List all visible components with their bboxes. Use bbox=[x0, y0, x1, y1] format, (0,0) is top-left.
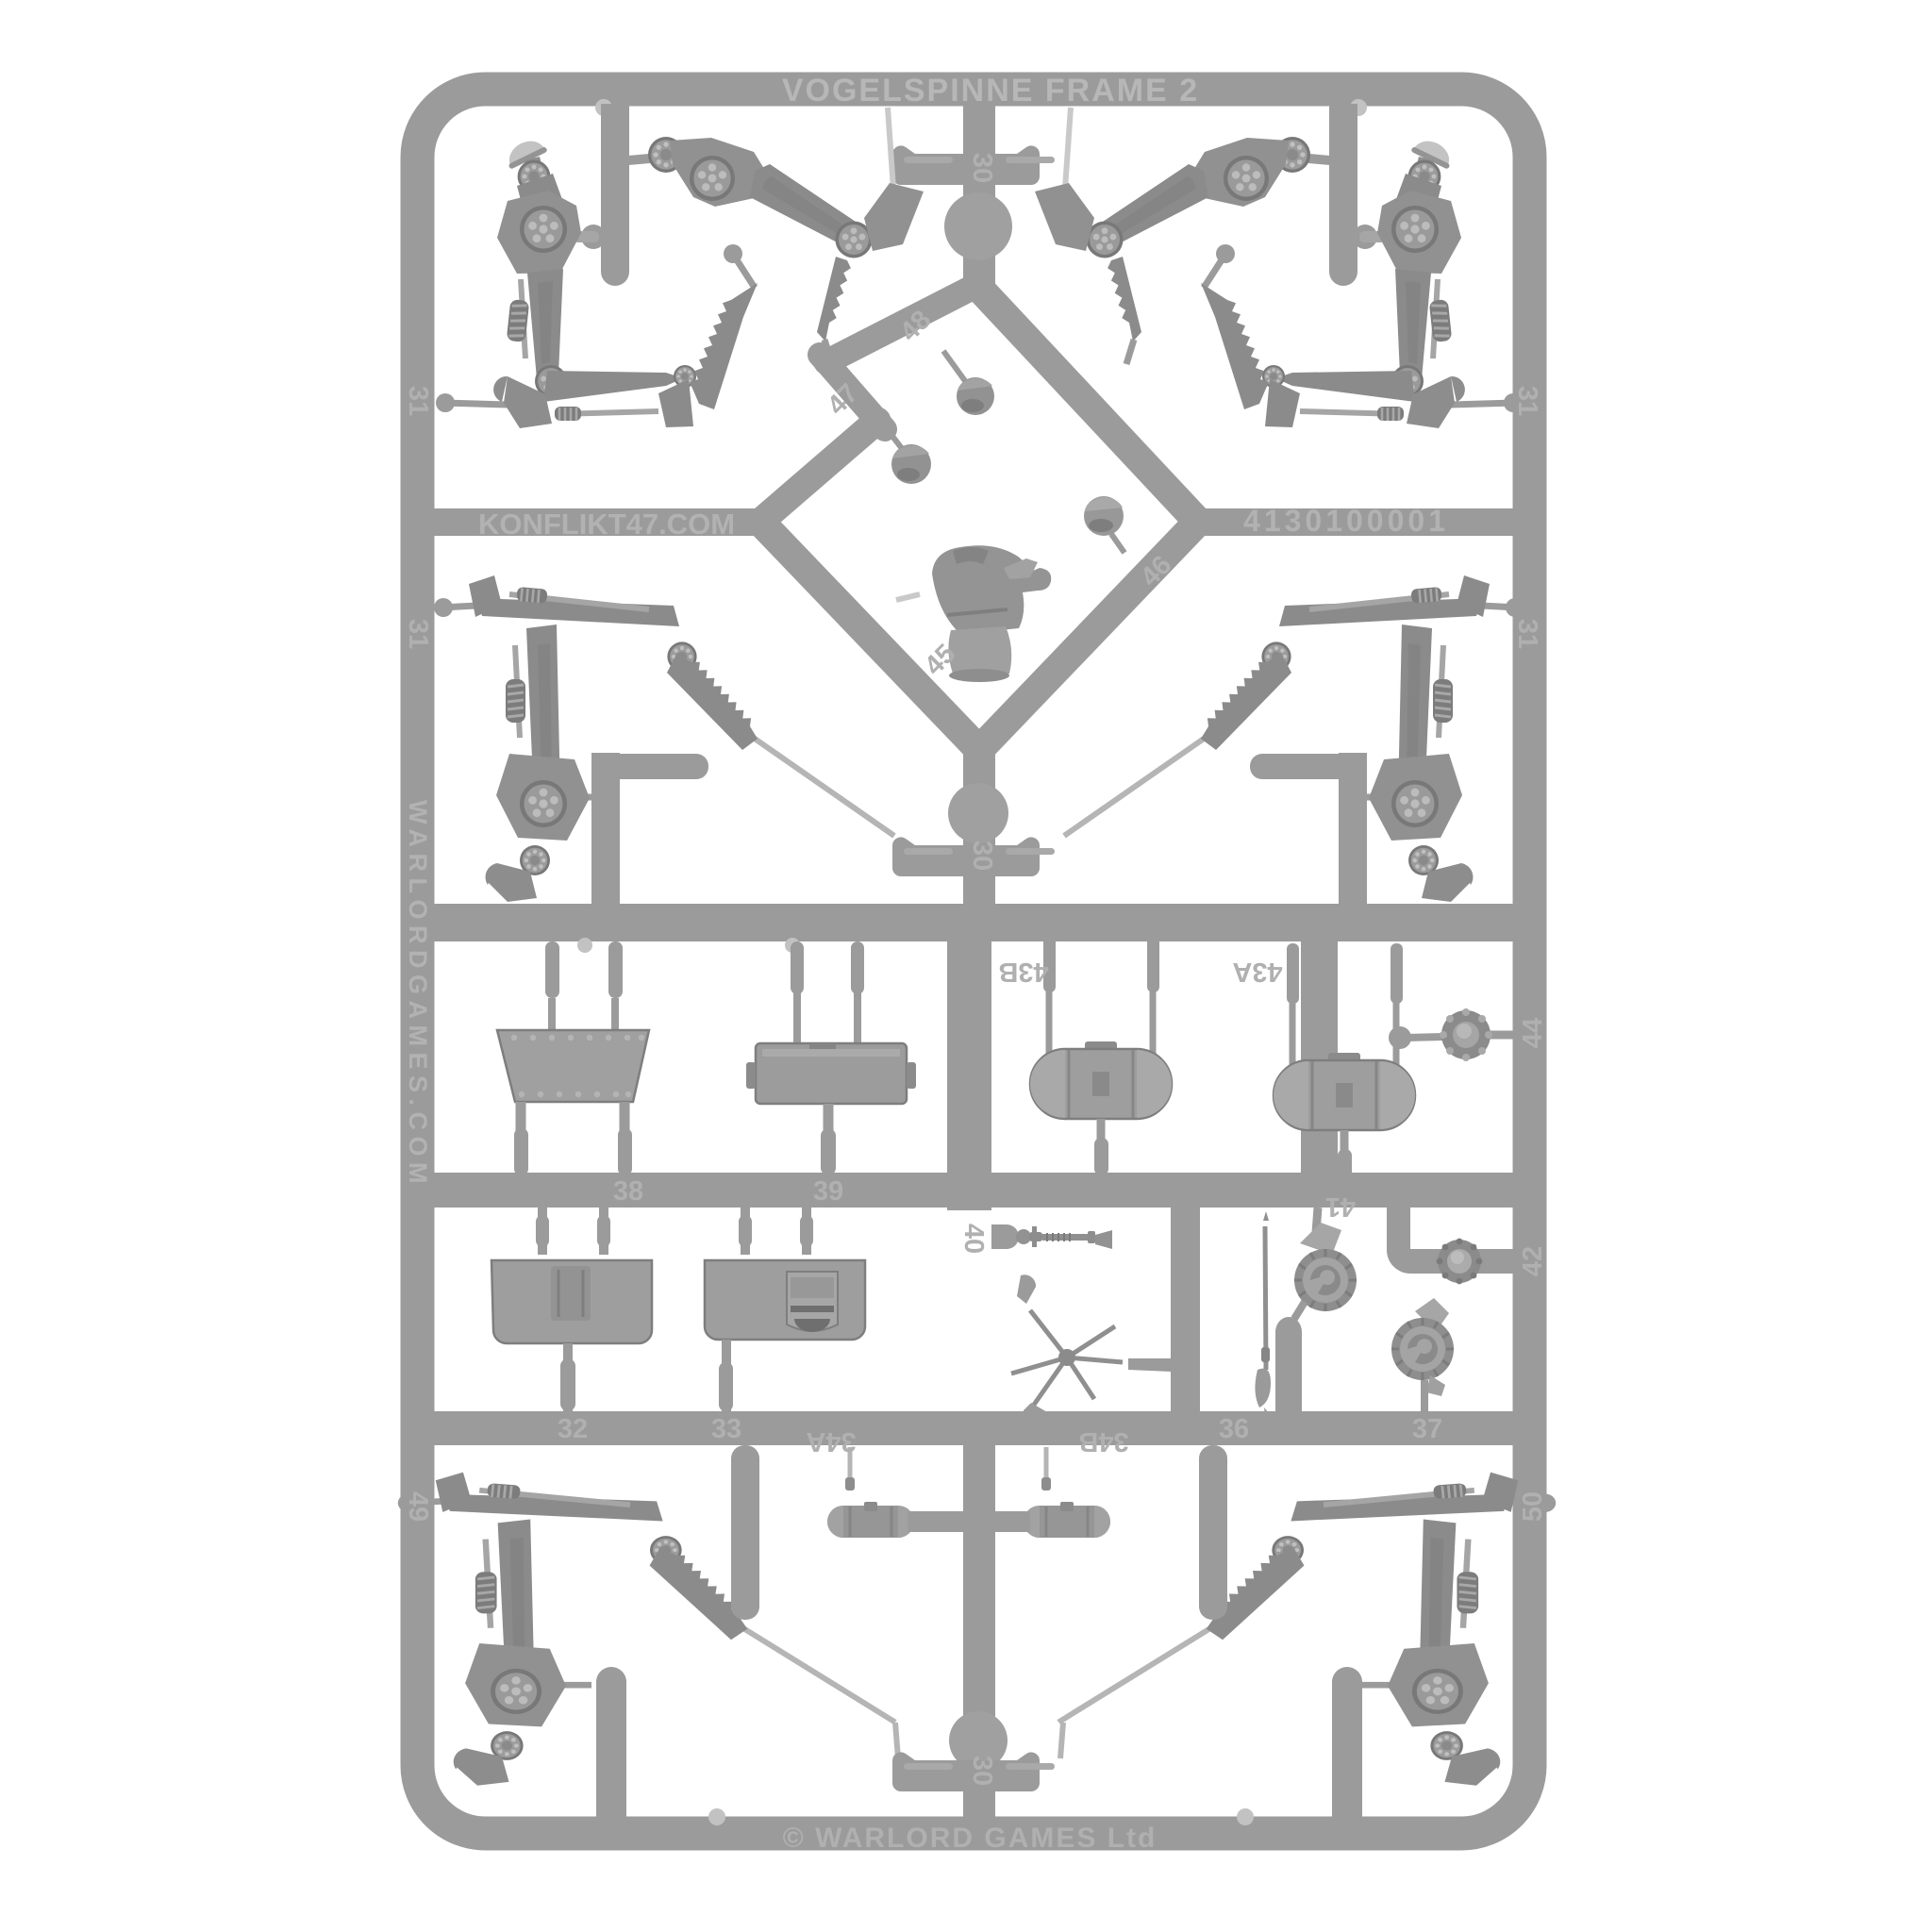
svg-text:41: 41 bbox=[1325, 1191, 1356, 1222]
svg-text:VOGELSPINNE FRAME 2: VOGELSPINNE FRAME 2 bbox=[782, 73, 1199, 108]
svg-text:38: 38 bbox=[613, 1176, 643, 1207]
svg-text:30: 30 bbox=[967, 841, 997, 871]
svg-text:34A: 34A bbox=[806, 1426, 856, 1457]
svg-text:43A: 43A bbox=[1232, 957, 1282, 987]
svg-text:37: 37 bbox=[1412, 1414, 1442, 1444]
svg-text:50: 50 bbox=[1518, 1491, 1548, 1522]
svg-text:4130100001: 4130100001 bbox=[1243, 504, 1449, 538]
svg-text:KONFLIKT47.COM: KONFLIKT47.COM bbox=[478, 508, 735, 541]
svg-text:WARLORDGAMES.COM: WARLORDGAMES.COM bbox=[404, 800, 432, 1190]
svg-text:42: 42 bbox=[1518, 1246, 1548, 1276]
svg-text:30: 30 bbox=[967, 153, 997, 183]
svg-text:32: 32 bbox=[558, 1414, 588, 1444]
svg-text:31: 31 bbox=[403, 619, 433, 649]
svg-text:40: 40 bbox=[958, 1224, 989, 1254]
svg-text:36: 36 bbox=[1219, 1414, 1249, 1444]
svg-text:49: 49 bbox=[403, 1491, 433, 1522]
svg-text:© WARLORD GAMES Ltd: © WARLORD GAMES Ltd bbox=[783, 1823, 1158, 1854]
svg-text:44: 44 bbox=[1518, 1018, 1548, 1048]
svg-text:33: 33 bbox=[711, 1414, 741, 1444]
svg-text:30: 30 bbox=[967, 1756, 997, 1786]
svg-text:31: 31 bbox=[403, 386, 433, 416]
svg-text:39: 39 bbox=[813, 1176, 843, 1207]
svg-text:43B: 43B bbox=[998, 957, 1048, 987]
svg-text:31: 31 bbox=[1512, 386, 1542, 416]
svg-text:31: 31 bbox=[1512, 619, 1542, 649]
svg-text:34B: 34B bbox=[1078, 1426, 1128, 1457]
